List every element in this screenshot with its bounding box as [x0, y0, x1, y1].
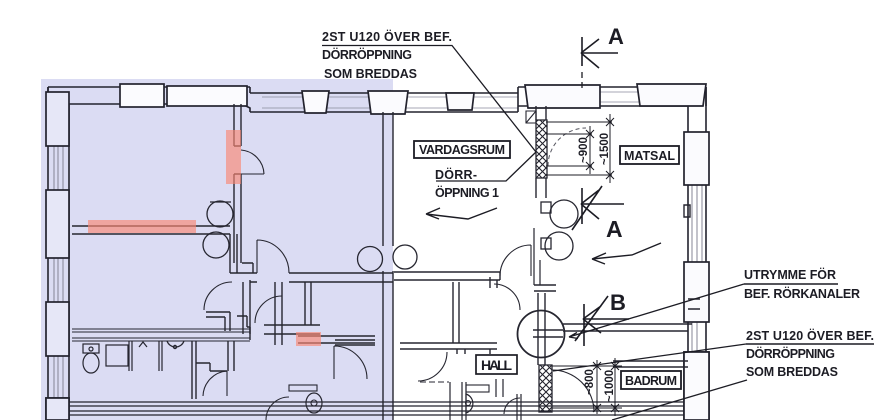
svg-text:B: B	[610, 290, 626, 315]
svg-text:~800: ~800	[584, 369, 596, 395]
svg-text:VARDAGSRUM: VARDAGSRUM	[419, 143, 505, 157]
svg-text:MATSAL: MATSAL	[624, 149, 675, 163]
svg-text:~1000: ~1000	[604, 370, 616, 402]
svg-text:~1500: ~1500	[599, 133, 611, 165]
svg-text:BEF. RÖRKANALER: BEF. RÖRKANALER	[744, 286, 860, 301]
svg-text:BADRUM: BADRUM	[625, 374, 677, 388]
svg-text:HALL: HALL	[481, 357, 512, 373]
svg-text:DÖRRÖPPNING: DÖRRÖPPNING	[746, 346, 835, 361]
svg-text:~900: ~900	[578, 137, 590, 163]
svg-text:UTRYMME FÖR: UTRYMME FÖR	[744, 267, 836, 282]
svg-text:ÖPPNING 1: ÖPPNING 1	[435, 185, 499, 200]
svg-text:A: A	[606, 216, 623, 242]
svg-text:SOM BREDDAS: SOM BREDDAS	[746, 365, 838, 379]
svg-text:DÖRRÖPPNING: DÖRRÖPPNING	[322, 47, 412, 62]
svg-text:SOM BREDDAS: SOM BREDDAS	[324, 67, 417, 81]
svg-text:A: A	[608, 24, 624, 49]
svg-text:2ST U120 ÖVER BEF.: 2ST U120 ÖVER BEF.	[322, 29, 452, 44]
svg-text:2ST U120 ÖVER BEF.: 2ST U120 ÖVER BEF.	[746, 328, 874, 343]
svg-text:DÖRR-: DÖRR-	[435, 167, 477, 182]
